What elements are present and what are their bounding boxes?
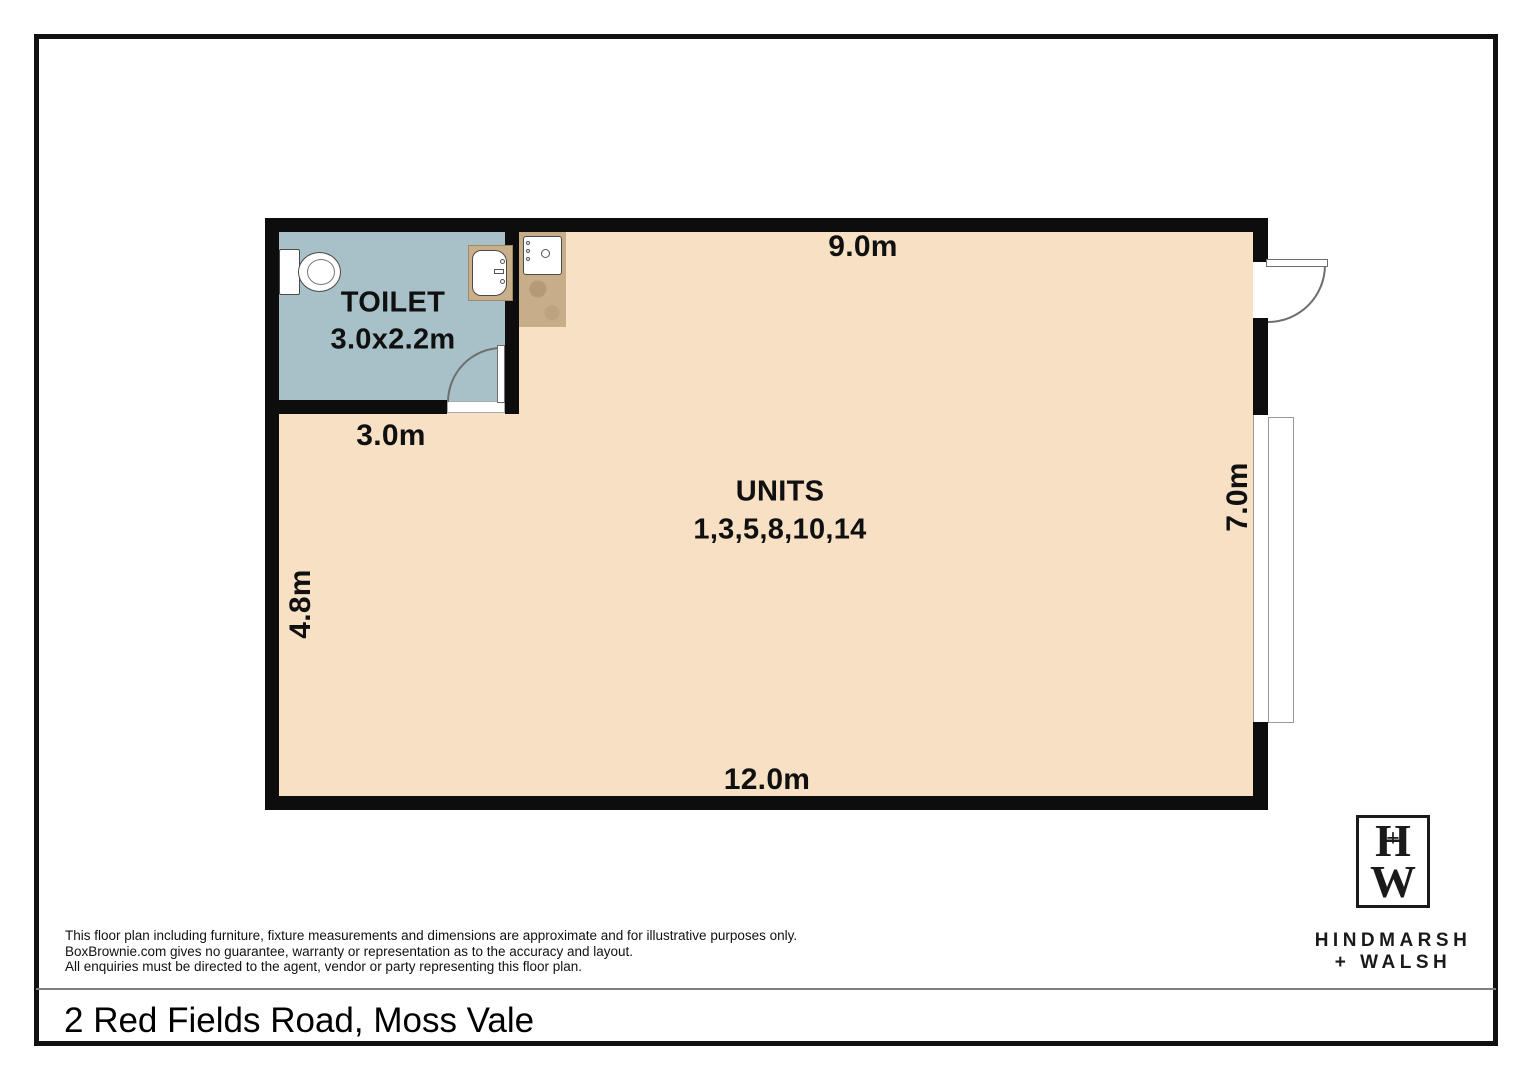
toilet-width-label: 3.0m (356, 419, 426, 453)
basin-tap-icon (500, 279, 505, 284)
disclaimer-text: This floor plan including furniture, fix… (65, 928, 797, 975)
basin-tap-icon (500, 259, 505, 264)
toilet-room-label: TOILET (341, 287, 445, 320)
toilet-door-leaf (497, 345, 505, 403)
dimension-right: 7.0m (1221, 462, 1255, 532)
agency-name-line2: + WALSH (1335, 952, 1451, 974)
toilet-room-dims: 3.0x2.2m (331, 324, 456, 357)
wall-left (265, 218, 279, 810)
address-divider (36, 988, 1496, 990)
wall-bottom (265, 796, 1268, 810)
wall-right-lower (1253, 722, 1268, 810)
sink-tap-icon (526, 241, 530, 245)
basin-faucet-icon (494, 269, 504, 274)
agency-name-line1: HINDMARSH (1315, 930, 1472, 952)
disclaimer-line-1: This floor plan including furniture, fix… (65, 928, 797, 944)
floorplan-page: 9.0m 12.0m 4.8m 7.0m 3.0m TOILET 3.0x2.2… (0, 0, 1534, 1085)
logo-letter-w: W (1370, 861, 1416, 903)
entry-door-leaf (1266, 259, 1328, 267)
logo-letter-h: H + (1375, 821, 1411, 861)
property-address: 2 Red Fields Road, Moss Vale (64, 1001, 534, 1041)
toilet-icon (279, 249, 300, 295)
wall-top (265, 218, 1268, 232)
logo-plus-icon: + (1386, 827, 1400, 851)
disclaimer-line-3: All enquiries must be directed to the ag… (65, 959, 797, 975)
units-room-numbers: 1,3,5,8,10,14 (693, 514, 866, 547)
dimension-left: 4.8m (284, 569, 318, 639)
toilet-bottom-wall (265, 400, 447, 414)
agency-logo-monogram: H + W (1356, 815, 1430, 908)
wall-right-upper (1253, 218, 1268, 262)
sink-tap-icon (526, 257, 530, 261)
sink-drain-icon (541, 249, 550, 258)
disclaimer-line-2: BoxBrownie.com gives no guarantee, warra… (65, 944, 797, 960)
sink-tap-icon (526, 249, 530, 253)
dimension-bottom: 12.0m (724, 763, 811, 797)
units-room-label: UNITS (736, 476, 825, 509)
roller-door-panel (1268, 417, 1294, 723)
roller-door-opening (1253, 415, 1269, 722)
toilet-bowl-inner-icon (307, 259, 335, 285)
wall-right-middle (1253, 318, 1268, 415)
dimension-top: 9.0m (828, 230, 898, 264)
